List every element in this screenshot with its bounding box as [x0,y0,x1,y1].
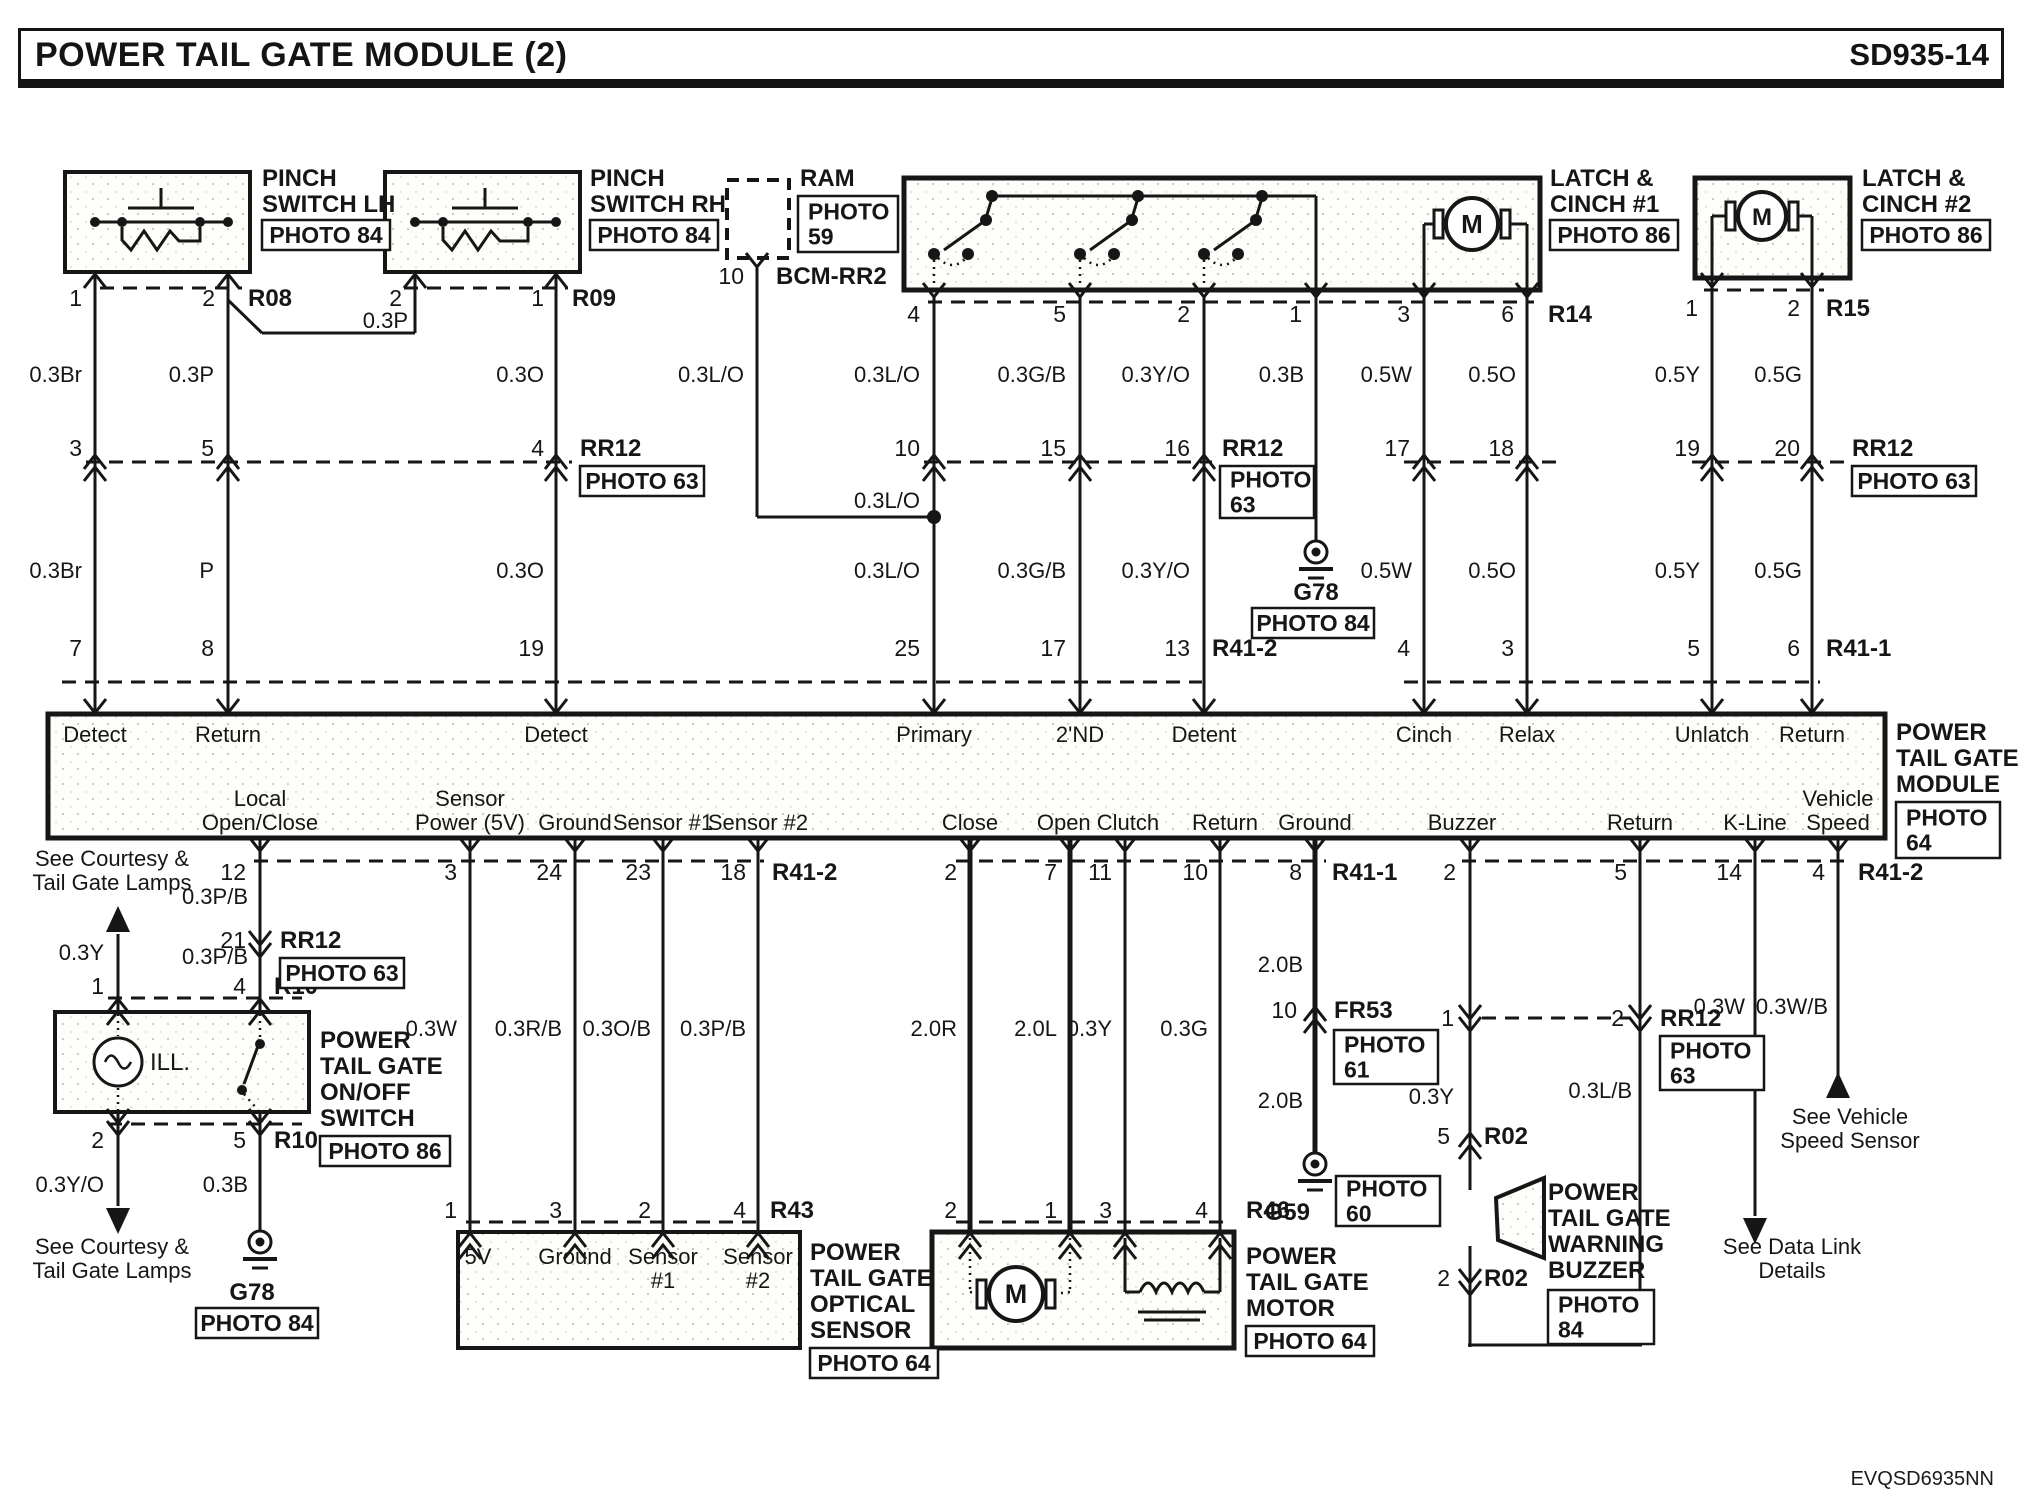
ram-box [727,180,789,258]
pin-number: 11 [1088,859,1112,885]
wire-label: 0.3Y [1409,1084,1455,1109]
connector-r43: R43 [770,1197,814,1224]
ram-label: RAM [800,165,855,192]
see-note: Speed Sensor [1780,1128,1919,1153]
pin-number: 19 [518,635,544,661]
wiring-diagram-canvas: MMMPINCHSWITCH LHPINCHSWITCH RHRAMLATCH … [0,0,2024,1504]
photo-ref-pinch-rh-text: PHOTO 84 [597,222,711,248]
wire-label: 0.3O [496,362,544,387]
pin-number: 17 [1040,635,1066,661]
connector-r41-1: R41-1 [1826,635,1891,662]
pin-number: 10 [894,435,920,461]
motor-label: MOTOR [1246,1295,1335,1322]
see-note: Tail Gate Lamps [33,870,192,895]
see-note: See Data Link [1723,1234,1862,1259]
pin-number: 17 [1384,435,1410,461]
see-note: See Vehicle [1792,1104,1908,1129]
document-watermark: EVQSD6935NN [1851,1468,1994,1491]
pin-number: 2 [1611,1005,1624,1031]
pin-number: 1 [91,973,104,999]
pin-number: 4 [531,435,544,461]
pin-number: 15 [1040,435,1066,461]
sensor-port: Sensor [628,1244,698,1269]
motor-brush [1434,210,1443,238]
module-label: POWER [1896,719,1987,746]
pin-number: 23 [625,859,651,885]
pin-number: 5 [1437,1123,1450,1149]
onoff-switch-label: ON/OFF [320,1079,411,1106]
ground-icon [256,1238,265,1247]
pin-number: 3 [1397,301,1410,327]
wire-label: 0.3Y/O [1122,558,1190,583]
junction-dot [927,510,941,524]
pinch-switch-lh-label: SWITCH LH [262,191,395,218]
pinch-switch-lh-label: PINCH [262,165,337,192]
module-port: Ground [538,810,611,835]
wire-label: 0.3O [496,558,544,583]
wire-label: 0.5G [1754,362,1802,387]
photo-ref-rr12-buzzer-text: 63 [1670,1063,1696,1089]
warning-buzzer-label: BUZZER [1548,1257,1645,1284]
junction-dot [410,217,420,227]
latch-cinch-2-label: CINCH #2 [1862,191,1971,218]
diagram-code: SD935-14 [1849,37,2001,73]
pin-number: 5 [233,1127,246,1153]
module-port: Return [1779,722,1845,747]
photo-ref-rr12-21-text: PHOTO 63 [285,960,398,986]
ground-g78: G78 [1293,579,1338,606]
connector-r09: R09 [572,285,616,312]
connector-r10: R10 [274,1127,318,1154]
module-port: Open Clutch [1037,810,1159,835]
junction-dot [986,190,998,202]
flow-arrow-icon [106,1208,130,1234]
symbol-path [1496,1178,1544,1258]
pin-number: 3 [1501,635,1514,661]
junction-dot [523,217,533,227]
optical-sensor-label: OPTICAL [810,1291,915,1318]
pin-number: 4 [233,973,246,999]
pin-number: 4 [907,301,920,327]
photo-ref-fr53-text: PHOTO [1344,1032,1425,1058]
sensor-port: #2 [746,1268,770,1293]
module-port: Cinch [1396,722,1452,747]
pin-number: 12 [220,859,246,885]
pin-number: 7 [69,635,82,661]
pin-number: 1 [1441,1005,1454,1031]
photo-ref-g59-text: 60 [1346,1201,1372,1227]
photo-ref-g78-bottom-text: PHOTO 84 [200,1310,314,1336]
motor-brush [1501,210,1510,238]
sensor-port: 5V [465,1244,492,1269]
module-port: K-Line [1723,810,1787,835]
junction-dot [1108,248,1120,260]
connector-r14: R14 [1548,301,1593,328]
photo-ref-fr53-text: 61 [1344,1057,1370,1083]
junction-dot [223,217,233,227]
wire-label: 0.5Y [1655,558,1701,583]
wire-label: 0.5O [1468,558,1516,583]
photo-ref-g59-text: PHOTO [1346,1176,1427,1202]
junction-dot [90,217,100,227]
module-port: Unlatch [1675,722,1750,747]
pin-number: 4 [1195,1197,1208,1223]
junction-dot [1132,190,1144,202]
wire-label: 0.5Y [1655,362,1701,387]
wiring-diagram-page: POWER TAIL GATE MODULE (2) SD935-14 MMMP… [0,0,2024,1504]
photo-ref-rr12-right-text: PHOTO 63 [1857,468,1970,494]
connector-rr12: RR12 [1852,435,1913,462]
module-port: Open/Close [202,810,318,835]
pin-number: 8 [1289,859,1302,885]
pinch-switch-rh-label: PINCH [590,165,665,192]
module-port: Return [1607,810,1673,835]
wire-label: 0.3Br [29,558,82,583]
pin-number: 20 [1774,435,1800,461]
module-port: Detent [1172,722,1237,747]
motor-letter: M [1461,209,1483,239]
junction-dot [962,248,974,260]
photo-ref-latch2-text: PHOTO 86 [1869,222,1982,248]
connector-fr53: FR53 [1334,997,1393,1024]
pin-number: 2 [944,859,957,885]
photo-ref-pinch-lh-text: PHOTO 84 [269,222,383,248]
wire-label: 2.0B [1258,1088,1303,1113]
photo-ref-g78-mid-text: PHOTO 84 [1256,610,1370,636]
wire-label: 0.3P/B [182,944,248,969]
optical-sensor-label: TAIL GATE [810,1265,933,1292]
photo-ref-rr12-mid-text: 63 [1230,492,1256,518]
photo-ref-ram-text: PHOTO [808,199,889,225]
pin-number: 5 [1687,635,1700,661]
see-note: See Courtesy & [35,1234,189,1259]
pin-number: 4 [1397,635,1410,661]
junction-dot [117,217,127,227]
wire-label: 0.3W [406,1016,458,1041]
pin-number: 1 [1044,1197,1057,1223]
pinch-switch-rh-label: SWITCH RH [590,191,726,218]
pin-number: 2 [1437,1265,1450,1291]
motor-brush [977,1280,986,1308]
title-band: POWER TAIL GATE MODULE (2) SD935-14 [18,28,2004,88]
wire-label: 0.3W/B [1756,994,1828,1019]
ground-icon [1312,548,1321,557]
connector-r02: R02 [1484,1123,1528,1150]
photo-ref-buzzer-text: PHOTO [1558,1292,1639,1318]
connector-bcm-rr2: BCM-RR2 [776,263,887,290]
pin-number: 14 [1716,859,1742,885]
photo-ref-rr12-left-text: PHOTO 63 [585,468,698,494]
module-label: TAIL GATE [1896,745,2019,772]
connector-r41-1: R41-1 [1332,859,1397,886]
photo-ref-optical-text: PHOTO 64 [817,1350,931,1376]
module-label: MODULE [1896,771,2000,798]
flow-arrow-icon [1826,1072,1850,1098]
pin-number: 1 [444,1197,457,1223]
photo-ref-module-text: PHOTO [1906,805,1987,831]
onoff-switch-label: TAIL GATE [320,1053,443,1080]
module-port: Speed [1806,810,1870,835]
pin-number: 5 [1053,301,1066,327]
wire-label: 2.0B [1258,952,1303,977]
photo-ref-onoff-text: PHOTO 86 [328,1138,441,1164]
warning-buzzer-label: TAIL GATE [1548,1205,1671,1232]
pin-number: 6 [1787,635,1800,661]
wire-label: 0.3P/B [680,1016,746,1041]
ground-g78: G78 [229,1279,274,1306]
sensor-port: #1 [651,1268,675,1293]
pin-number: 4 [1812,859,1825,885]
wire-label: 0.3L/O [854,558,920,583]
module-port: Relax [1499,722,1555,747]
wire-label: 0.5O [1468,362,1516,387]
see-note: See Courtesy & [35,846,189,871]
warning-buzzer-label: POWER [1548,1179,1639,1206]
latch-cinch-2-label: LATCH & [1862,165,1966,192]
wire-label: 0.3Y [59,940,105,965]
pin-number: 5 [201,435,214,461]
wire-label: 0.3L/O [854,488,920,513]
photo-ref-buzzer-text: 84 [1558,1317,1584,1343]
connector-rr12: RR12 [580,435,641,462]
module-port: Return [1192,810,1258,835]
pin-number: 10 [1182,859,1208,885]
module-port: Return [195,722,261,747]
pin-number: 10 [1271,997,1297,1023]
photo-ref-ram-text: 59 [808,224,834,250]
pin-number: 10 [718,263,744,289]
junction-dot [1256,190,1268,202]
connector-rr12: RR12 [280,927,341,954]
pin-number: 13 [1164,635,1190,661]
wire-label: 0.5G [1754,558,1802,583]
see-note: Details [1758,1258,1825,1283]
module-port: Sensor #1 [613,810,713,835]
optical-sensor-label: SENSOR [810,1317,911,1344]
wire-label: 0.5W [1361,558,1413,583]
pin-number: 2 [1443,859,1456,885]
pin-number: 1 [531,285,544,311]
module-port: Ground [1278,810,1351,835]
wire-label: 0.3B [1259,362,1304,387]
latch-cinch-1-label: LATCH & [1550,165,1654,192]
wire-label: 0.3Y/O [1122,362,1190,387]
module-port: Vehicle [1803,786,1874,811]
pin-number: 2 [202,285,215,311]
module-port: Detect [63,722,127,747]
photo-ref-latch1-text: PHOTO 86 [1557,222,1670,248]
wire-label: P [199,558,214,583]
photo-ref-rr12-buzzer-text: PHOTO [1670,1038,1751,1064]
page-title: POWER TAIL GATE MODULE (2) [21,36,567,75]
pin-number: 8 [201,635,214,661]
pin-number: 2 [638,1197,651,1223]
pin-number: 18 [720,859,746,885]
ground-g59: G59 [1265,1199,1310,1226]
sensor-port: Ground [538,1244,611,1269]
wire-label: 0.3P/B [182,884,248,909]
ground-icon [1311,1160,1320,1169]
wire-label: 0.3Y/O [36,1172,104,1197]
junction-dot [1126,214,1138,226]
module-port: Sensor [435,786,505,811]
wire-label: 0.3L/O [678,362,744,387]
optical-sensor-label: POWER [810,1239,901,1266]
module-port: Local [234,786,287,811]
wire-label: 0.3Br [29,362,82,387]
connector-r41-2: R41-2 [1858,859,1923,886]
warning-buzzer-label: WARNING [1548,1231,1664,1258]
pin-number: 1 [69,285,82,311]
sensor-port: Sensor [723,1244,793,1269]
module-port: Buzzer [1428,810,1496,835]
motor-brush [1726,202,1735,230]
wire-label: 0.3B [203,1172,248,1197]
wire-label: 0.3W [1694,994,1746,1019]
pin-number: 16 [1164,435,1190,461]
motor-label: POWER [1246,1243,1337,1270]
module-port: 2'ND [1056,722,1104,747]
wire-label: 0.3G/B [998,558,1066,583]
pin-number: 2 [1177,301,1190,327]
pin-number: 5 [1614,859,1627,885]
motor-letter: M [1005,1279,1028,1309]
pin-number: 19 [1674,435,1700,461]
pin-number: 1 [1685,295,1698,321]
pin-number: 2 [944,1197,957,1223]
pin-number: 7 [1044,859,1057,885]
pin-number: 2 [1787,295,1800,321]
pin-number: 6 [1501,301,1514,327]
wire-label: 2.0R [911,1016,957,1041]
onoff-switch-label: POWER [320,1027,411,1054]
wire-label: 0.3R/B [495,1016,562,1041]
wire-label: 0.3G [1160,1016,1208,1041]
pin-number: 24 [536,859,562,885]
onoff-switch-label: SWITCH [320,1105,415,1132]
pin-number: 25 [894,635,920,661]
junction-dot [1250,214,1262,226]
wire-label: 0.5W [1361,362,1413,387]
pin-number: 4 [733,1197,746,1223]
wire-label: 2.0L [1014,1016,1057,1041]
module-port: Close [942,810,998,835]
junction-dot [980,214,992,226]
module-port: Sensor #2 [708,810,808,835]
junction-dot [237,1085,247,1095]
pin-number: 3 [549,1197,562,1223]
photo-ref-module-text: 64 [1906,830,1932,856]
see-note: Tail Gate Lamps [33,1258,192,1283]
module-port: Power (5V) [415,810,525,835]
junction-dot [551,217,561,227]
junction-dot [255,1039,265,1049]
pin-number: 18 [1488,435,1514,461]
pin-number: 2 [91,1127,104,1153]
motor-label: TAIL GATE [1246,1269,1369,1296]
junction-dot [195,217,205,227]
connector-r08: R08 [248,285,292,312]
wire-label: 0.3Y [1067,1016,1113,1041]
pin-number: 3 [1099,1197,1112,1223]
wire-label: 0.3P [363,308,408,333]
module-port: Primary [896,722,972,747]
module-port: Detect [524,722,588,747]
motor-brush [1789,202,1798,230]
wire-label: 0.3O/B [583,1016,651,1041]
connector-r15: R15 [1826,295,1870,322]
pin-number: 3 [444,859,457,885]
pin-number: 3 [69,435,82,461]
motor-letter: M [1752,204,1772,231]
wire-label: 0.3L/B [1568,1078,1632,1103]
pin-number: 1 [1289,301,1302,327]
wire-label: 0.3P [169,362,214,387]
wire-label: 0.3G/B [998,362,1066,387]
junction-dot [1232,248,1244,260]
motor-brush [1046,1280,1055,1308]
illumination-label: ILL. [150,1049,190,1076]
flow-arrow-icon [106,906,130,932]
wire-label: 0.3L/O [854,362,920,387]
photo-ref-motor-text: PHOTO 64 [1253,1328,1367,1354]
connector-r02: R02 [1484,1265,1528,1292]
photo-ref-rr12-mid-text: PHOTO [1230,467,1311,493]
junction-dot [438,217,448,227]
connector-rr12: RR12 [1222,435,1283,462]
connector-r41-2: R41-2 [772,859,837,886]
latch-cinch-1-label: CINCH #1 [1550,191,1659,218]
